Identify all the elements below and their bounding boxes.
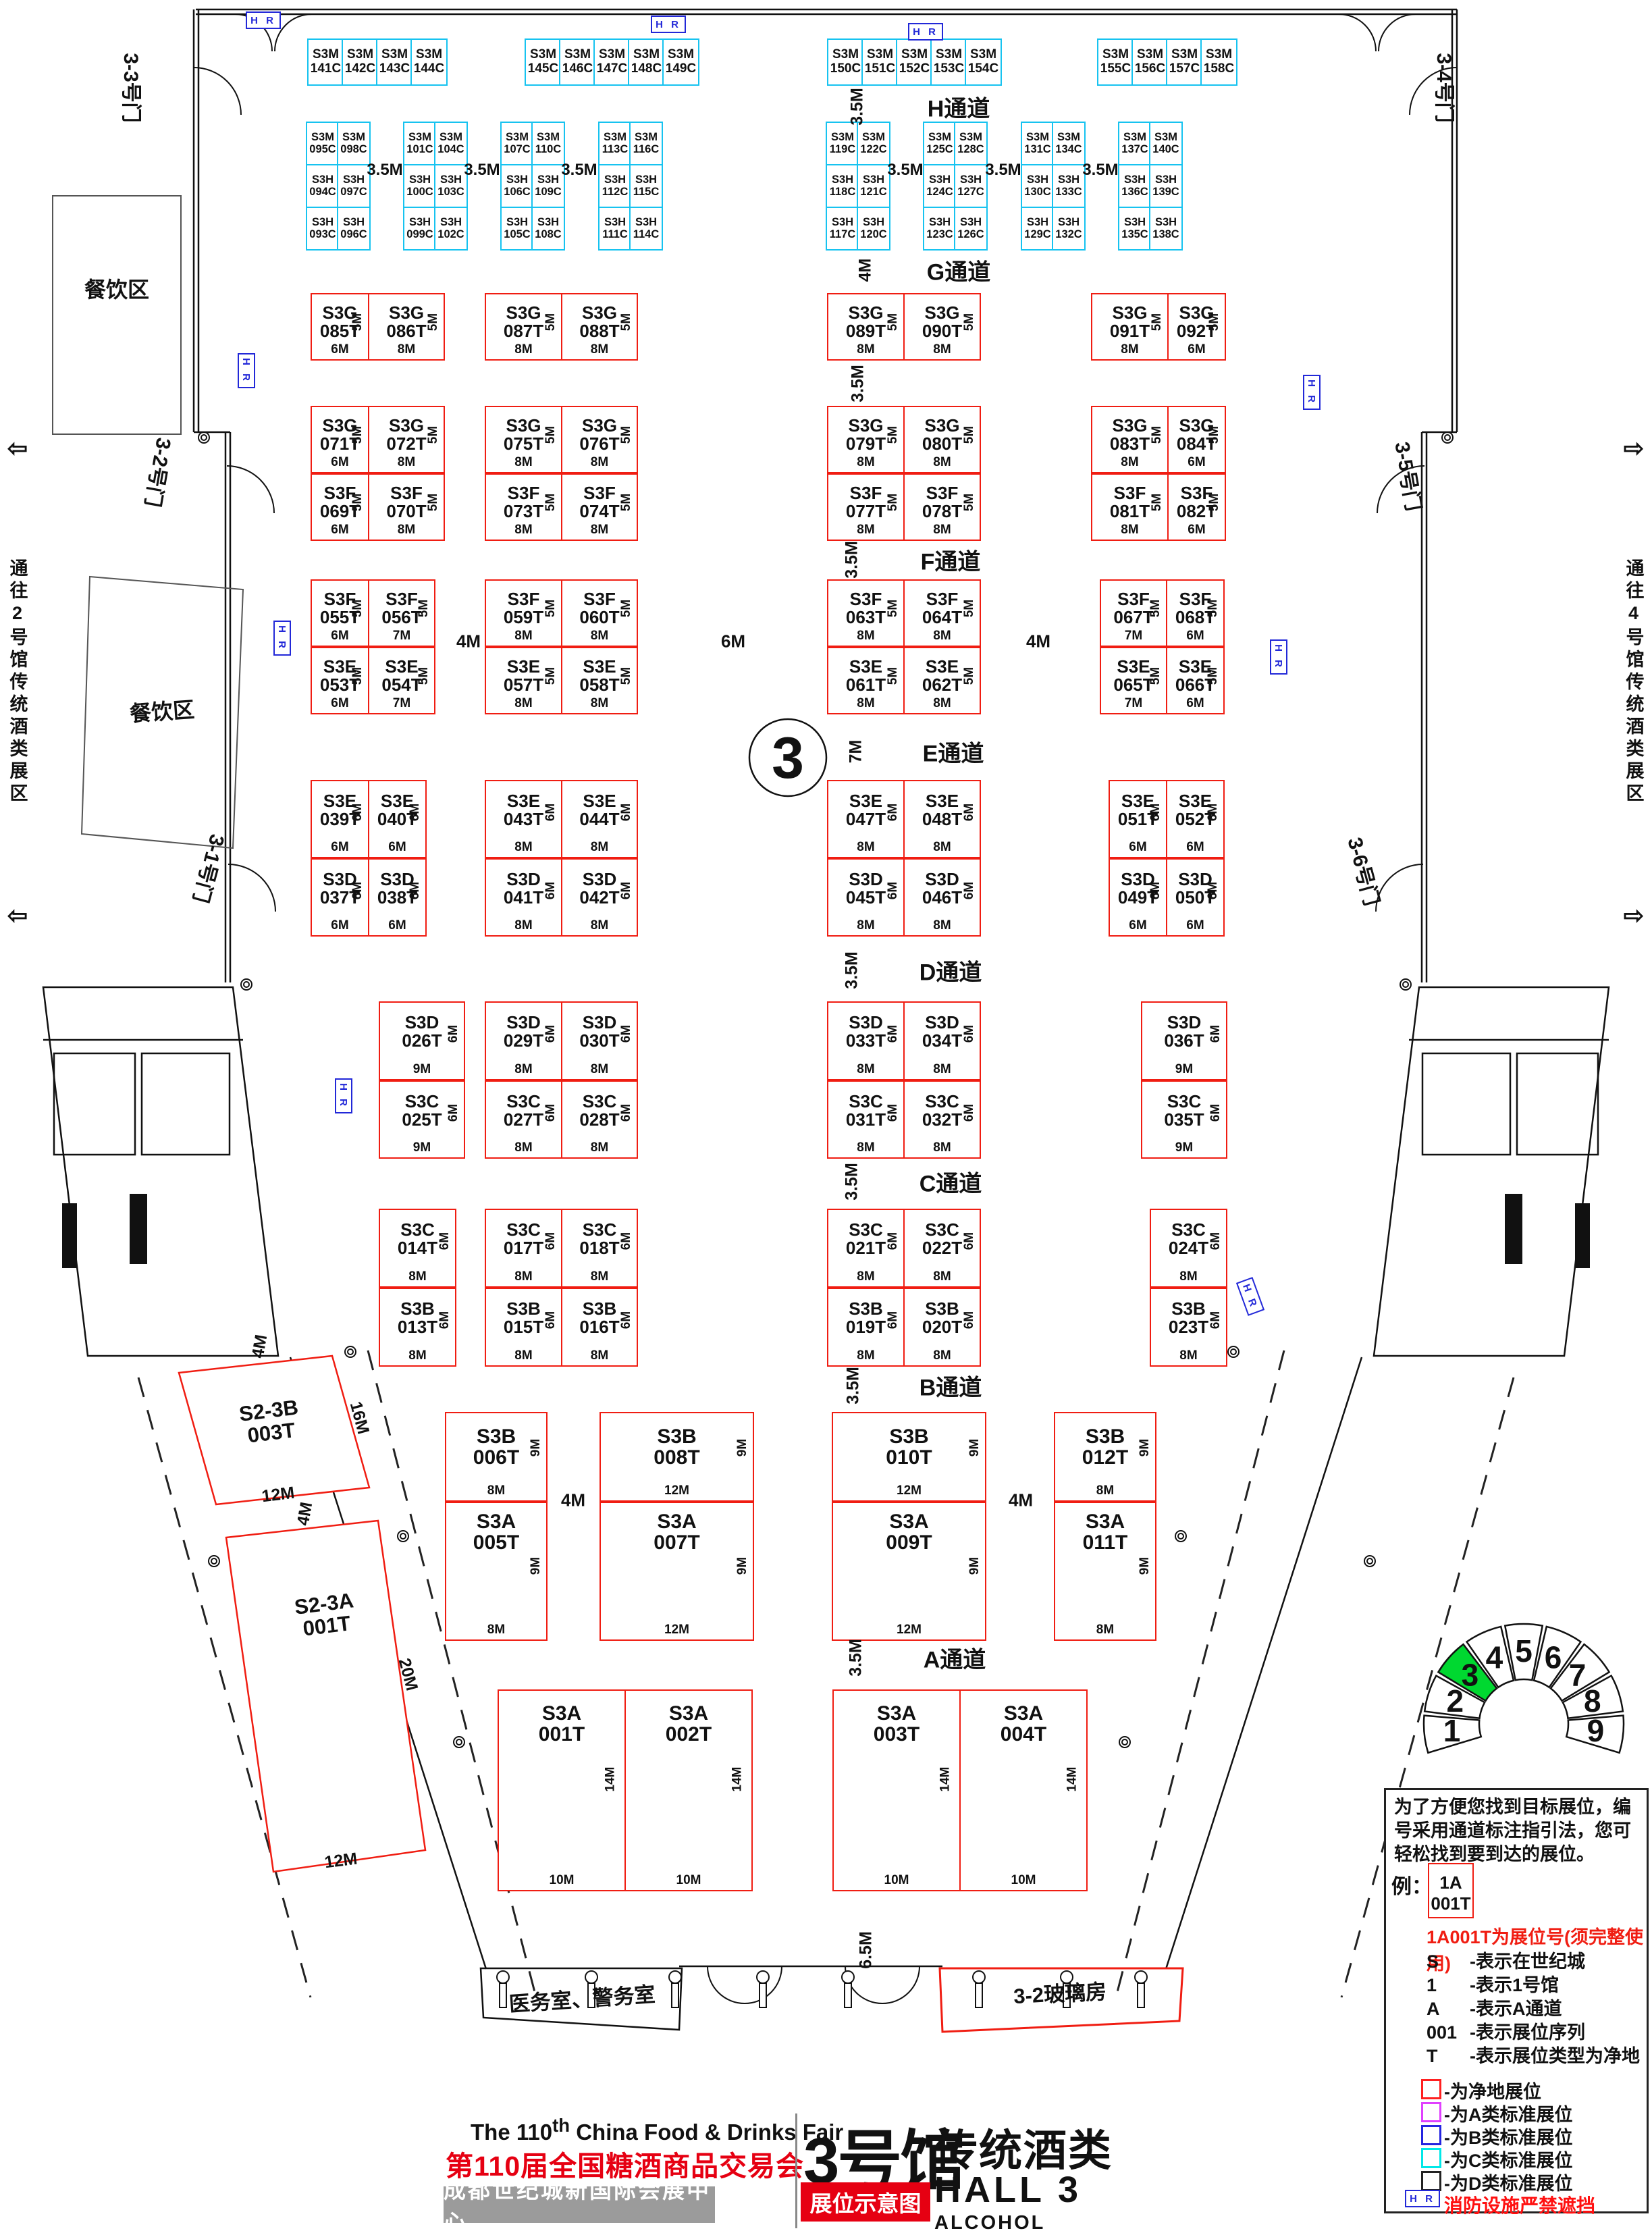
booth-S3M-104C[interactable]: S3M104C [434, 122, 468, 165]
booth-S3D-046T[interactable]: S3D046T6M8M [903, 858, 981, 937]
booth-S3B-010T[interactable]: S3B010T9M12M [832, 1412, 986, 1502]
booth-S3H-099C[interactable]: S3H099C [403, 207, 437, 251]
booth-S3C-028T[interactable]: S3C028T6M8M [561, 1080, 638, 1159]
booth-S3H-133C[interactable]: S3H133C [1052, 164, 1086, 208]
booth-S3M-155C[interactable]: S3M155C [1097, 38, 1134, 86]
booth-S3D-038T[interactable]: S3D038T6M6M [368, 858, 427, 937]
aisle-label-G: G通道 [927, 254, 990, 287]
dim-label: 3.5M [367, 161, 402, 180]
booth-S3C-022T[interactable]: S3C022T6M8M [903, 1209, 981, 1288]
booth-S3M-098C[interactable]: S3M098C [337, 122, 371, 165]
booth-S3M-142C[interactable]: S3M142C [342, 38, 379, 86]
booth-S3H-108C[interactable]: S3H108C [531, 207, 565, 251]
booth-S3M-143C[interactable]: S3M143C [376, 38, 413, 86]
dim-label: 4M [1009, 1490, 1033, 1511]
booth-S3C-021T[interactable]: S3C021T6M8M [827, 1209, 905, 1288]
dim-label: 4M [456, 631, 481, 652]
title-block: The 110th China Food & Drinks Fair 第110届… [0, 2107, 1652, 2233]
booth-S3M-153C[interactable]: S3M153C [930, 38, 967, 86]
booth-S3F-073T[interactable]: S3F073T5M8M [485, 473, 562, 541]
legend-line-A: A-表示A通道 [1427, 1994, 1562, 2020]
fire-hydrant-marker: H R [651, 16, 686, 33]
booth-S3M-158C[interactable]: S3M158C [1200, 38, 1237, 86]
booth-S3F-056T[interactable]: S3F056T5M7M [368, 579, 435, 647]
booth-S3M-146C[interactable]: S3M146C [559, 38, 596, 86]
booth-S3D-034T[interactable]: S3D034T6M8M [903, 1001, 981, 1080]
aisle-label-C: C通道 [920, 1165, 982, 1199]
booth-S3B-012T[interactable]: S3B012T9M8M [1054, 1412, 1156, 1502]
hall-category-en: ALCOHOL [934, 2212, 1045, 2233]
dim-label: 3.5M [561, 161, 597, 180]
booth-S3H-135C[interactable]: S3H135C [1118, 207, 1152, 251]
aisle-label-H: H通道 [928, 90, 990, 124]
map-label: ⇦ [7, 434, 28, 463]
aisle-dim-label: 3.5M [847, 1639, 866, 1677]
booth-S3C-018T[interactable]: S3C018T6M8M [561, 1209, 638, 1288]
booth-S3G-087T[interactable]: S3G087T5M8M [485, 293, 562, 361]
map-label: 3-2玻璃房 [1013, 1974, 1107, 2009]
booth-S3M-154C[interactable]: S3M154C [965, 38, 1002, 86]
booth-S3D-026T[interactable]: S3D026T6M9M [379, 1001, 465, 1080]
booth-S3H-123C[interactable]: S3H123C [923, 207, 957, 251]
fire-hydrant-marker: H R [335, 1078, 352, 1113]
booth-S3H-130C[interactable]: S3H130C [1021, 164, 1055, 208]
dim-label: 4M [561, 1490, 585, 1511]
booth-S3F-070T[interactable]: S3F070T5M8M [368, 473, 445, 541]
booth-S3E-047T[interactable]: S3E047T6M8M [827, 780, 905, 858]
map-label: ⇦ [7, 901, 28, 930]
booth-S3H-121C[interactable]: S3H121C [857, 164, 890, 208]
booth-S3H-097C[interactable]: S3H097C [337, 164, 371, 208]
svg-text:6: 6 [1545, 1639, 1562, 1675]
fire-hydrant-marker: H R [273, 621, 291, 656]
booth-S3H-103C[interactable]: S3H103C [434, 164, 468, 208]
booth-S3M-113C[interactable]: S3M113C [598, 122, 632, 165]
booth-S3F-082T[interactable]: S3F082T5M6M [1167, 473, 1226, 541]
aisle-label-D: D通道 [920, 954, 982, 987]
booth-S3F-081T[interactable]: S3F081T5M8M [1091, 473, 1169, 541]
map-label: 4M [248, 1333, 272, 1359]
hall-locator-fan: 123456789 [1424, 1624, 1624, 1753]
booth-S3G-083T[interactable]: S3G083T5M8M [1091, 406, 1169, 473]
booth-S3M-156C[interactable]: S3M156C [1131, 38, 1169, 86]
booth-S3M-150C[interactable]: S3M150C [827, 38, 864, 86]
booth-S3M-128C[interactable]: S3M128C [954, 122, 988, 165]
booth-S3F-060T[interactable]: S3F060T5M8M [561, 579, 638, 647]
booth-S3H-112C[interactable]: S3H112C [598, 164, 632, 208]
aisle-dim-label: 3.5M [843, 951, 862, 989]
fire-hydrant-marker: H R [238, 353, 255, 388]
booth-S3E-039T[interactable]: S3E039T6M6M [311, 780, 369, 858]
booth-S3A-002T[interactable]: S3A002T14M10M [624, 1689, 753, 1891]
map-label: 通往4号馆传统酒类展区 [1621, 558, 1647, 806]
booth-S3M-147C[interactable]: S3M147C [593, 38, 631, 86]
booth-S3H-129C[interactable]: S3H129C [1021, 207, 1055, 251]
fair-title-en: The 110th China Food & Drinks Fair [471, 2115, 843, 2145]
booth-S3D-036T[interactable]: S3D036T6M9M [1141, 1001, 1227, 1080]
svg-text:5: 5 [1515, 1633, 1533, 1669]
booth-S3M-149C[interactable]: S3M149C [662, 38, 699, 86]
dim-label: 3.5M [1082, 161, 1118, 180]
legend-sample-booth: 1A 001T [1428, 1863, 1474, 1918]
aisle-dim-label: 7M [847, 740, 866, 764]
booth-S3D-037T[interactable]: S3D037T6M6M [311, 858, 369, 937]
booth-S3M-101C[interactable]: S3M101C [403, 122, 437, 165]
booth-S3E-058T[interactable]: S3E058T5M8M [561, 647, 638, 714]
map-label: ⇨ [1624, 434, 1644, 463]
svg-text:9: 9 [1587, 1713, 1605, 1748]
booth-S3H-093C[interactable]: S3H093C [306, 207, 340, 251]
map-label: 餐饮区 [84, 273, 149, 304]
booth-S3M-125C[interactable]: S3M125C [923, 122, 957, 165]
booth-S3C-027T[interactable]: S3C027T6M8M [485, 1080, 562, 1159]
venue-name: 成都世纪城新国际会展中心 [444, 2186, 715, 2223]
booth-S3M-141C[interactable]: S3M141C [307, 38, 344, 86]
aisle-label-A: A通道 [924, 1641, 986, 1675]
booth-S3M-157C[interactable]: S3M157C [1166, 38, 1203, 86]
svg-text:4: 4 [1486, 1639, 1503, 1675]
booth-S3E-057T[interactable]: S3E057T5M8M [485, 647, 562, 714]
booth-S3G-090T[interactable]: S3G090T5M8M [903, 293, 981, 361]
booth-S3B-008T[interactable]: S3B008T9M12M [599, 1412, 754, 1502]
booth-S3G-072T[interactable]: S3G072T5M8M [368, 406, 445, 473]
legend-example-label: 例： [1391, 1870, 1432, 1899]
booth-S3G-080T[interactable]: S3G080T5M8M [903, 406, 981, 473]
fire-hydrant-marker: H R [908, 23, 943, 41]
booth-S3M-144C[interactable]: S3M144C [410, 38, 448, 86]
dim-label: 3.5M [464, 161, 500, 180]
fire-hydrant-marker: H R [246, 11, 281, 29]
legend-line-S: S-表示在世纪城 [1427, 1947, 1585, 1973]
svg-text:3: 3 [772, 726, 804, 791]
booth-S3C-031T[interactable]: S3C031T6M8M [827, 1080, 905, 1159]
booth-S3H-100C[interactable]: S3H100C [403, 164, 437, 208]
booth-S3D-045T[interactable]: S3D045T6M8M [827, 858, 905, 937]
booth-S2-3A-001T[interactable] [226, 1521, 425, 1872]
booth-S3A-005T[interactable]: S3A005T9M8M [445, 1502, 548, 1641]
booth-S3H-117C[interactable]: S3H117C [826, 207, 859, 251]
booth-S3G-089T[interactable]: S3G089T5M8M [827, 293, 905, 361]
legend-line-001: 001-表示展位序列 [1427, 2018, 1585, 2044]
booth-S3M-122C[interactable]: S3M122C [857, 122, 890, 165]
booth-S3G-086T[interactable]: S3G086T5M8M [368, 293, 445, 361]
legend-paragraph: 为了方便您找到目标展位，编号采用通道标注指引法，您可轻松找到要到达的展位。 [1394, 1795, 1641, 1866]
booth-S3H-138C[interactable]: S3H138C [1149, 207, 1183, 251]
booth-label-001T: S2-3A001T [293, 1590, 357, 1640]
booth-S3B-023T[interactable]: S3B023T6M8M [1150, 1288, 1227, 1367]
booth-S3F-067T[interactable]: S3F067T5M7M [1100, 579, 1167, 647]
booth-S3E-066T[interactable]: S3E066T5M6M [1166, 647, 1225, 714]
booth-S3A-003T[interactable]: S3A003T14M10M [832, 1689, 961, 1891]
booth-S3M-134C[interactable]: S3M134C [1052, 122, 1086, 165]
booth-S3M-095C[interactable]: S3M095C [306, 122, 340, 165]
svg-text:3: 3 [1462, 1657, 1479, 1692]
booth-S3M-131C[interactable]: S3M131C [1021, 122, 1055, 165]
booth-S3F-068T[interactable]: S3F068T5M6M [1166, 579, 1225, 647]
hall-number-circle: 3 [749, 719, 826, 796]
booth-S3G-091T[interactable]: S3G091T5M8M [1091, 293, 1169, 361]
booth-S3F-078T[interactable]: S3F078T5M8M [903, 473, 981, 541]
booth-S3H-118C[interactable]: S3H118C [826, 164, 859, 208]
booth-S3E-044T[interactable]: S3E044T6M8M [561, 780, 638, 858]
booth-S3H-096C[interactable]: S3H096C [337, 207, 371, 251]
booth-S3B-013T[interactable]: S3B013T6M8M [379, 1288, 456, 1367]
stair-hatch [62, 1194, 1590, 1268]
booth-S3E-054T[interactable]: S3E054T5M7M [368, 647, 435, 714]
booth-S3A-004T[interactable]: S3A004T14M10M [959, 1689, 1088, 1891]
map-label: 3-3号门 [118, 53, 148, 122]
sample-line1: 1A [1439, 1872, 1462, 1893]
hall-name-en: HALL 3 [934, 2169, 1082, 2211]
booth-S3M-152C[interactable]: S3M152C [896, 38, 933, 86]
title-divider [795, 2113, 797, 2228]
fire-hydrant-marker: H R [1303, 375, 1321, 410]
booth-S3F-059T[interactable]: S3F059T5M8M [485, 579, 562, 647]
aisle-dim-label: 6.5M [857, 1931, 876, 1969]
booth-S3E-052T[interactable]: S3E052T6M6M [1166, 780, 1225, 858]
booth-S3B-020T[interactable]: S3B020T6M8M [903, 1288, 981, 1367]
booth-S3C-025T[interactable]: S3C025T6M9M [379, 1080, 465, 1159]
booth-S3E-040T[interactable]: S3E040T6M6M [368, 780, 427, 858]
booth-S3C-035T[interactable]: S3C035T6M9M [1141, 1080, 1227, 1159]
dim-label: 6M [721, 631, 745, 652]
booth-S3D-049T[interactable]: S3D049T6M6M [1109, 858, 1167, 937]
booth-S3G-092T[interactable]: S3G092T5M6M [1167, 293, 1226, 361]
booth-S3H-127C[interactable]: S3H127C [954, 164, 988, 208]
map-label: 餐饮区 [129, 693, 196, 729]
booth-S3G-079T[interactable]: S3G079T5M8M [827, 406, 905, 473]
aisle-dim-label: 3.5M [843, 541, 862, 579]
booth-S3E-043T[interactable]: S3E043T6M8M [485, 780, 562, 858]
booth-S3F-055T[interactable]: S3F055T5M6M [311, 579, 369, 647]
booth-S3G-075T[interactable]: S3G075T5M8M [485, 406, 562, 473]
booth-S3G-085T[interactable]: S3G085T5M6M [311, 293, 369, 361]
booth-S3H-136C[interactable]: S3H136C [1118, 164, 1152, 208]
sample-line2: 001T [1431, 1893, 1470, 1914]
booth-S3H-111C[interactable]: S3H111C [598, 207, 632, 251]
booth-S3M-110C[interactable]: S3M110C [531, 122, 565, 165]
aisle-label-F: F通道 [921, 544, 981, 577]
booth-S3F-069T[interactable]: S3F069T5M6M [311, 473, 369, 541]
booth-S3G-076T[interactable]: S3G076T5M8M [561, 406, 638, 473]
booth-S3M-151C[interactable]: S3M151C [861, 38, 899, 86]
booth-S3H-132C[interactable]: S3H132C [1052, 207, 1086, 251]
booth-S3M-137C[interactable]: S3M137C [1118, 122, 1152, 165]
booth-S3A-009T[interactable]: S3A009T9M12M [832, 1502, 986, 1641]
legend-swatch [1421, 2079, 1441, 2099]
aisle-label-E: E通道 [923, 735, 984, 768]
booth-S3F-074T[interactable]: S3F074T5M8M [561, 473, 638, 541]
booth-S3E-061T[interactable]: S3E061T5M8M [827, 647, 905, 714]
floor-plan: 123456789 3 S3M141CS3M142CS3M143CS3M144C… [0, 0, 1652, 2233]
map-label: 通往2号馆传统酒类展区 [5, 558, 31, 806]
booth-S3D-050T[interactable]: S3D050T6M6M [1166, 858, 1225, 937]
booth-S3M-107C[interactable]: S3M107C [500, 122, 534, 165]
dim-label: 3.5M [887, 161, 923, 180]
aisle-dim-label: 4M [856, 259, 876, 282]
booth-S3E-062T[interactable]: S3E062T5M8M [903, 647, 981, 714]
booth-S3D-041T[interactable]: S3D041T6M8M [485, 858, 562, 937]
booth-S3M-119C[interactable]: S3M119C [826, 122, 859, 165]
aisle-dim-label: 3.5M [848, 88, 868, 126]
dim-label: 3.5M [985, 161, 1021, 180]
booth-S3F-077T[interactable]: S3F077T5M8M [827, 473, 905, 541]
booth-S3H-115C[interactable]: S3H115C [629, 164, 663, 208]
map-label: 12M [261, 1483, 296, 1507]
aisle-dim-label: 3.5M [844, 1367, 863, 1404]
booth-S3C-032T[interactable]: S3C032T6M8M [903, 1080, 981, 1159]
legend-line-1: 1-表示1号馆 [1427, 1970, 1559, 1997]
legend-line-T: T-表示展位类型为净地 [1427, 2041, 1640, 2068]
aisle-label-B: B通道 [920, 1369, 982, 1402]
booth-S3C-014T[interactable]: S3C014T6M8M [379, 1209, 456, 1288]
aisle-dim-label: 3.5M [843, 1163, 862, 1201]
map-label: 4M [294, 1500, 317, 1527]
booth-label-003T: S2-3B003T [238, 1396, 302, 1447]
booth-S3H-124C[interactable]: S3H124C [923, 164, 957, 208]
booth-S3D-042T[interactable]: S3D042T6M8M [561, 858, 638, 937]
aisle-dim-label: 3.5M [849, 365, 868, 402]
booth-S3B-015T[interactable]: S3B015T6M8M [485, 1288, 562, 1367]
booth-S3H-114C[interactable]: S3H114C [629, 207, 663, 251]
booth-S3H-102C[interactable]: S3H102C [434, 207, 468, 251]
svg-text:1: 1 [1443, 1713, 1461, 1748]
booth-S3A-011T[interactable]: S3A011T9M8M [1054, 1502, 1156, 1641]
dim-label: 4M [1026, 631, 1050, 652]
booth-S3F-063T[interactable]: S3F063T5M8M [827, 579, 905, 647]
booth-S3H-105C[interactable]: S3H105C [500, 207, 534, 251]
booth-S3B-016T[interactable]: S3B016T6M8M [561, 1288, 638, 1367]
booth-S3C-024T[interactable]: S3C024T6M8M [1150, 1209, 1227, 1288]
booth-S3E-065T[interactable]: S3E065T5M7M [1100, 647, 1167, 714]
booth-S3C-017T[interactable]: S3C017T6M8M [485, 1209, 562, 1288]
booth-S3E-048T[interactable]: S3E048T6M8M [903, 780, 981, 858]
map-label: 3-4号门 [1431, 53, 1461, 122]
booth-S3M-116C[interactable]: S3M116C [629, 122, 663, 165]
booth-S3B-006T[interactable]: S3B006T9M8M [445, 1412, 548, 1502]
booth-S3E-053T[interactable]: S3E053T5M6M [311, 647, 369, 714]
booth-S3B-019T[interactable]: S3B019T6M8M [827, 1288, 905, 1367]
booth-S3H-126C[interactable]: S3H126C [954, 207, 988, 251]
booth-S3D-033T[interactable]: S3D033T6M8M [827, 1001, 905, 1080]
booth-S3M-145C[interactable]: S3M145C [525, 38, 562, 86]
map-label: 12M [323, 1849, 358, 1873]
booth-S3A-007T[interactable]: S3A007T9M12M [599, 1502, 754, 1641]
booth-S3M-148C[interactable]: S3M148C [628, 38, 665, 86]
booth-S3H-106C[interactable]: S3H106C [500, 164, 534, 208]
booth-S3A-001T[interactable]: S3A001T14M10M [498, 1689, 626, 1891]
booth-S3E-051T[interactable]: S3E051T6M6M [1109, 780, 1167, 858]
booth-S3D-030T[interactable]: S3D030T6M8M [561, 1001, 638, 1080]
fire-hydrant-marker: H R [1270, 639, 1287, 675]
booth-S3M-140C[interactable]: S3M140C [1149, 122, 1183, 165]
map-label: ⇨ [1624, 901, 1644, 930]
booth-S3H-094C[interactable]: S3H094C [306, 164, 340, 208]
booth-S3H-139C[interactable]: S3H139C [1149, 164, 1183, 208]
booth-S3F-064T[interactable]: S3F064T5M8M [903, 579, 981, 647]
booth-S3G-084T[interactable]: S3G084T5M6M [1167, 406, 1226, 473]
booth-S3H-109C[interactable]: S3H109C [531, 164, 565, 208]
plan-tag: 展位示意图 [801, 2182, 930, 2222]
booth-S3G-071T[interactable]: S3G071T5M6M [311, 406, 369, 473]
booth-S3D-029T[interactable]: S3D029T6M8M [485, 1001, 562, 1080]
booth-S3H-120C[interactable]: S3H120C [857, 207, 890, 251]
booth-S3G-088T[interactable]: S3G088T5M8M [561, 293, 638, 361]
